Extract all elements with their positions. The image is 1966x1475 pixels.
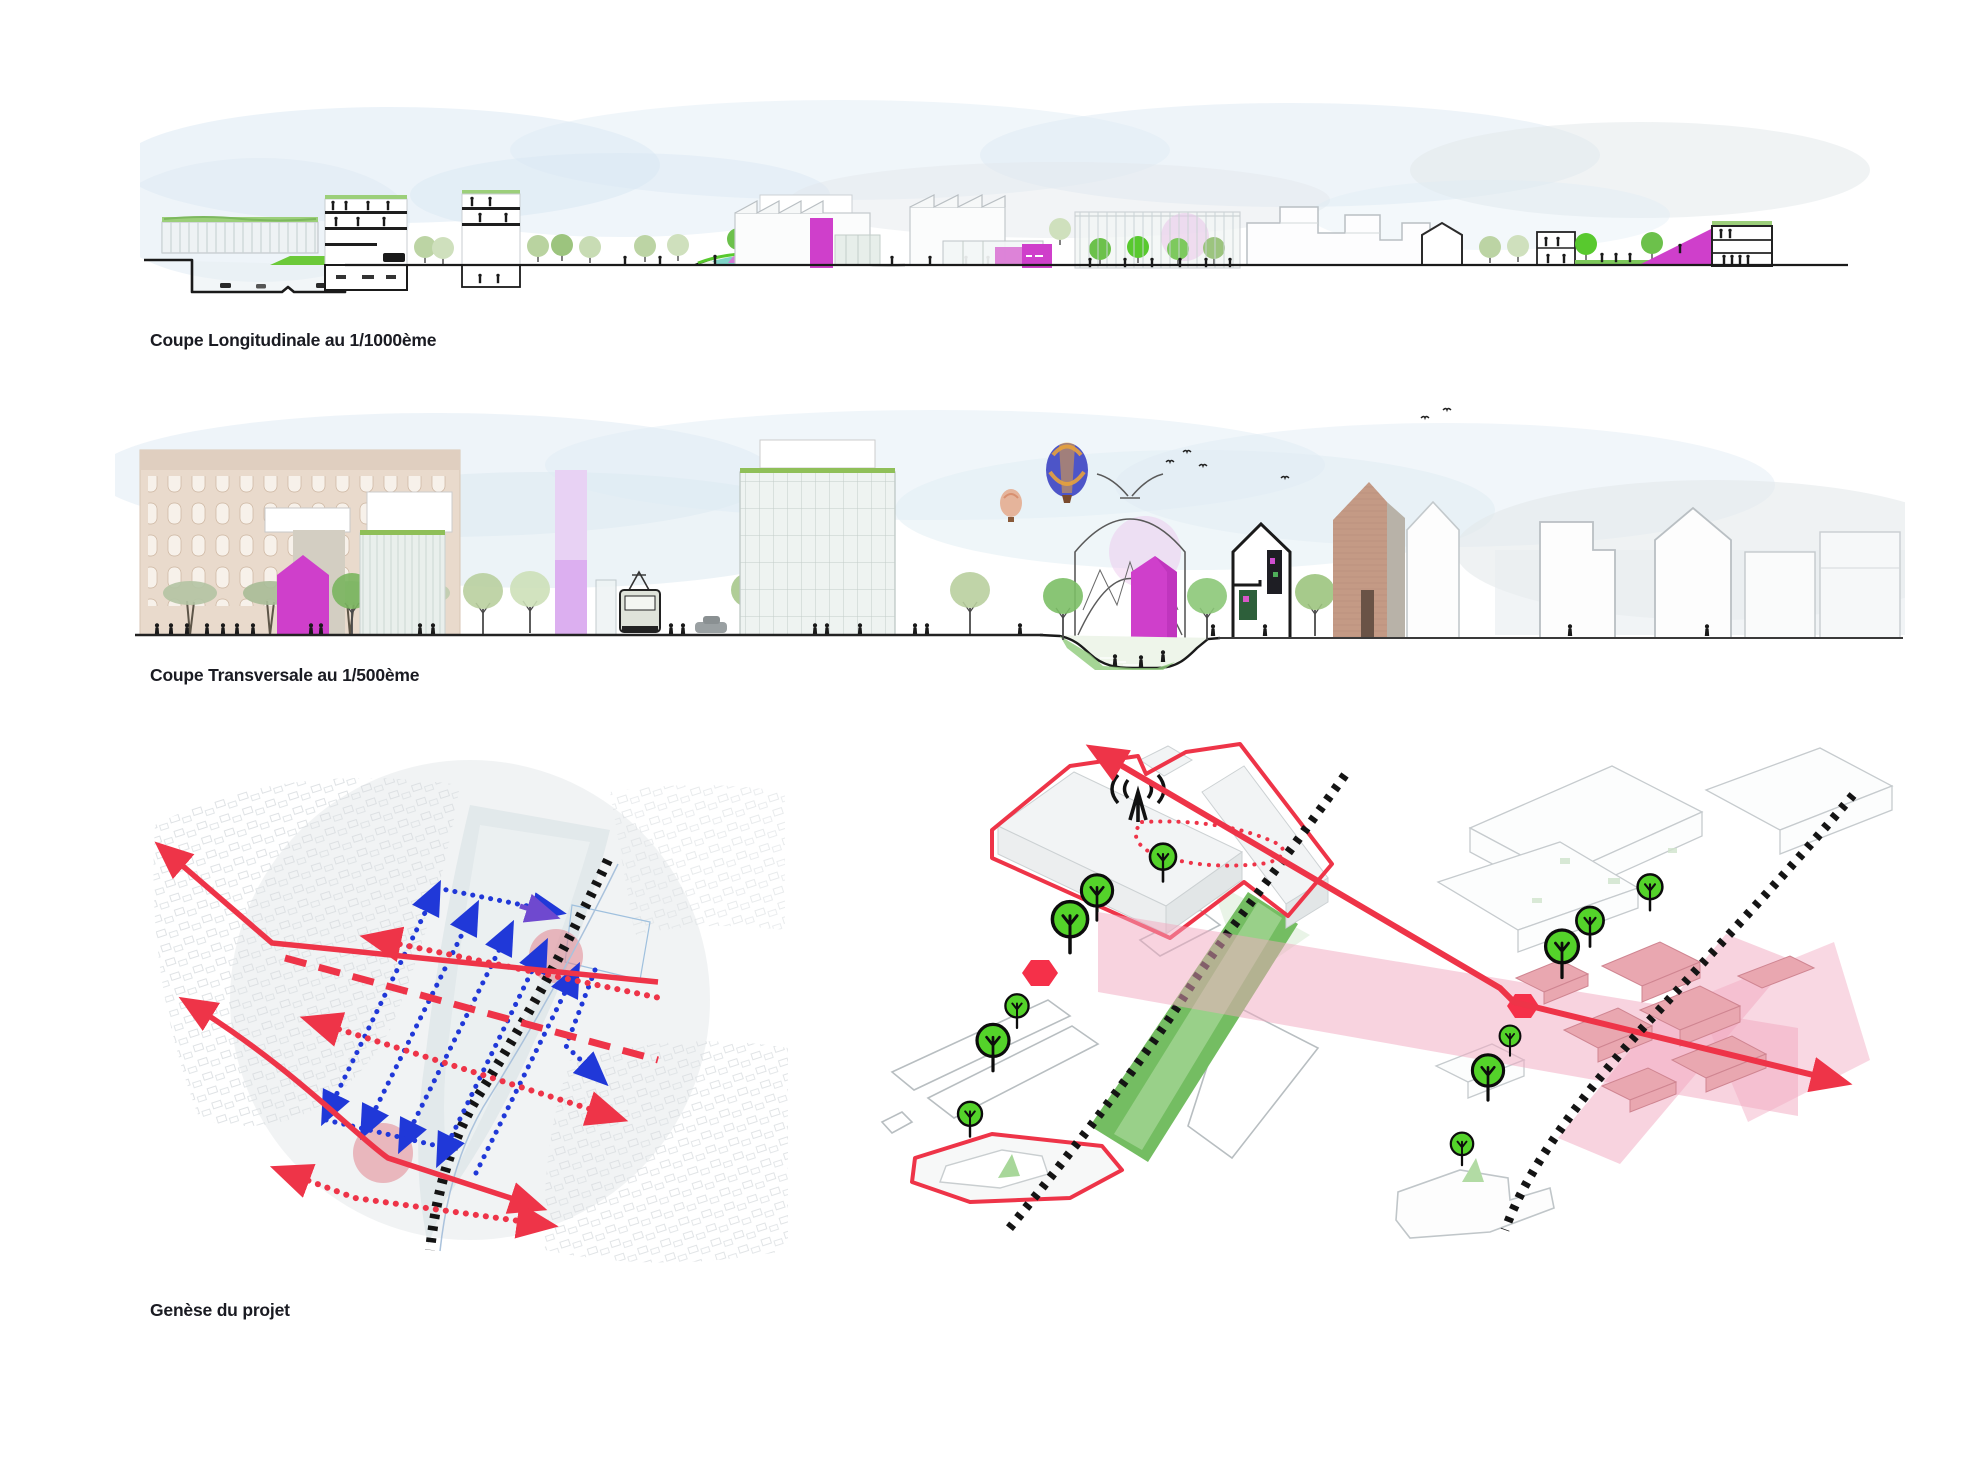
building-a-terraces [325,195,407,290]
person-silhouette-icon [1018,623,1022,635]
bus-shelter [596,580,616,635]
longitudinal-section-drawing [140,95,1870,330]
car-icon [695,616,727,633]
tree-icon [1043,578,1083,640]
glass-hall [1075,212,1240,268]
tree-icon [1295,574,1335,636]
glass-box-building [360,492,452,635]
person-silhouette-icon [913,623,917,635]
caption-transversale: Coupe Transversale au 1/500ème [150,665,419,686]
person-silhouette-icon [669,623,673,635]
rail-cover-viaduct [162,217,318,253]
magenta-accent-slab [810,218,833,268]
genesis-diagrams-figure [140,730,1930,1275]
street-trees [463,571,562,635]
l-building-red-outline [912,1134,1122,1202]
building-c [1712,221,1772,266]
pink-tower [555,470,587,635]
small-building [1537,232,1575,265]
tree-icon [1479,236,1501,263]
tree-icon [1049,218,1071,245]
transversal-section-figure [115,400,1905,685]
genesis-diagrams-drawing [140,730,1930,1275]
diagram-flows-existing [153,760,788,1263]
person-silhouette-icon [1211,624,1215,636]
transversal-section-drawing [115,400,1905,685]
building-b-green-roof [462,190,520,287]
presentation-board: Coupe Longitudinale au 1/1000ème [0,0,1966,1475]
caption-genese: Genèse du projet [150,1300,290,1321]
tree-icon [432,237,454,264]
glass-grid-building [740,440,895,635]
person-silhouette-icon [1678,244,1681,254]
tree-icon [1507,235,1529,262]
sunken-garden [1040,635,1220,670]
station-massing [992,744,1332,938]
red-node-hexagon [1022,960,1058,986]
person-silhouette-icon [681,623,685,635]
caption-longitudinal: Coupe Longitudinale au 1/1000ème [150,330,436,351]
person-silhouette-icon [925,623,929,635]
truck-icon [383,253,405,262]
diagram-crossing-axes [1095,748,1892,1238]
tree-icon [1187,578,1227,640]
tree-icon [950,572,990,634]
street-trees [527,234,689,265]
longitudinal-section-figure [140,95,1870,330]
